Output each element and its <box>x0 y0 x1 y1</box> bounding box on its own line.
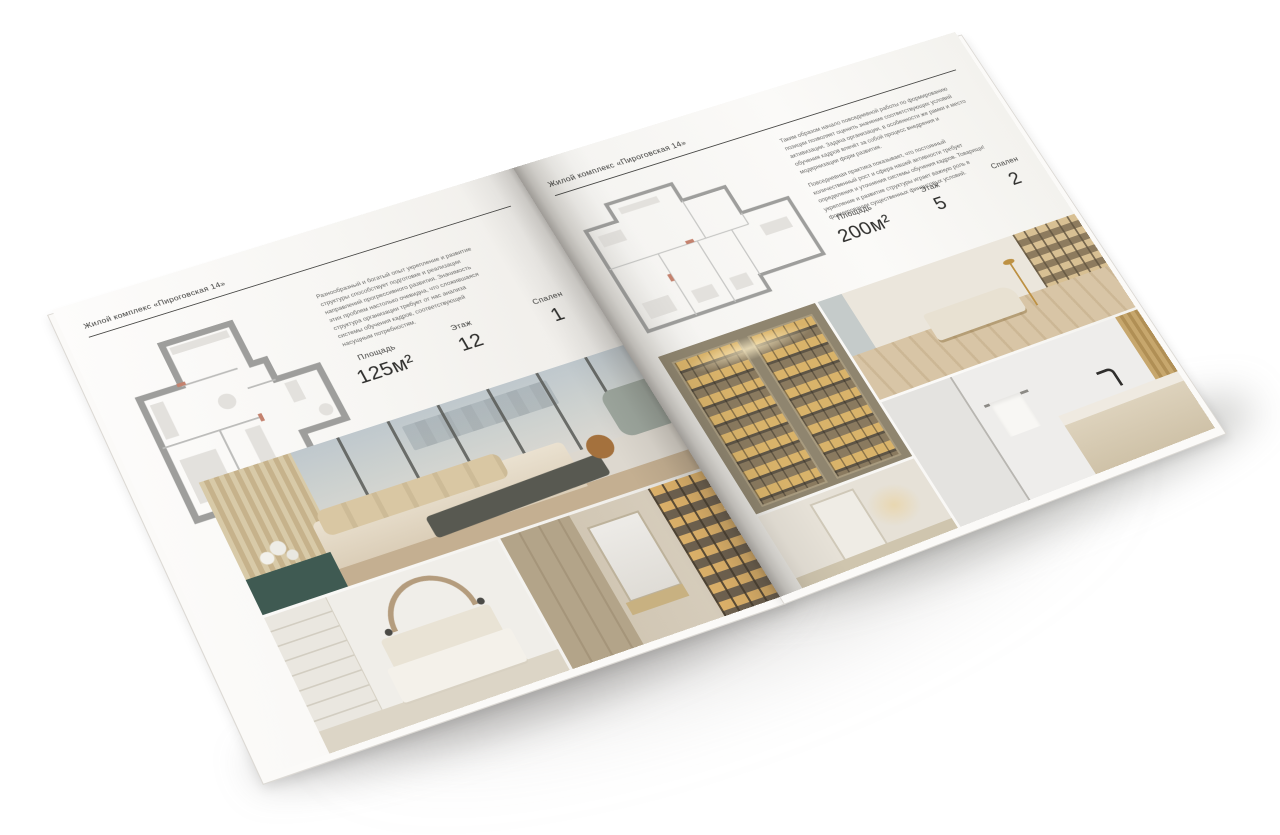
left-stat-bedrooms: Спален 1 <box>517 285 591 334</box>
magazine-spread: Жилой комплекс «Пироговская 14» Разнообр… <box>0 0 1280 835</box>
right-description: Таким образом начало повседневной работы… <box>778 82 1012 227</box>
left-stat-floor: Этаж 12 <box>433 313 502 361</box>
